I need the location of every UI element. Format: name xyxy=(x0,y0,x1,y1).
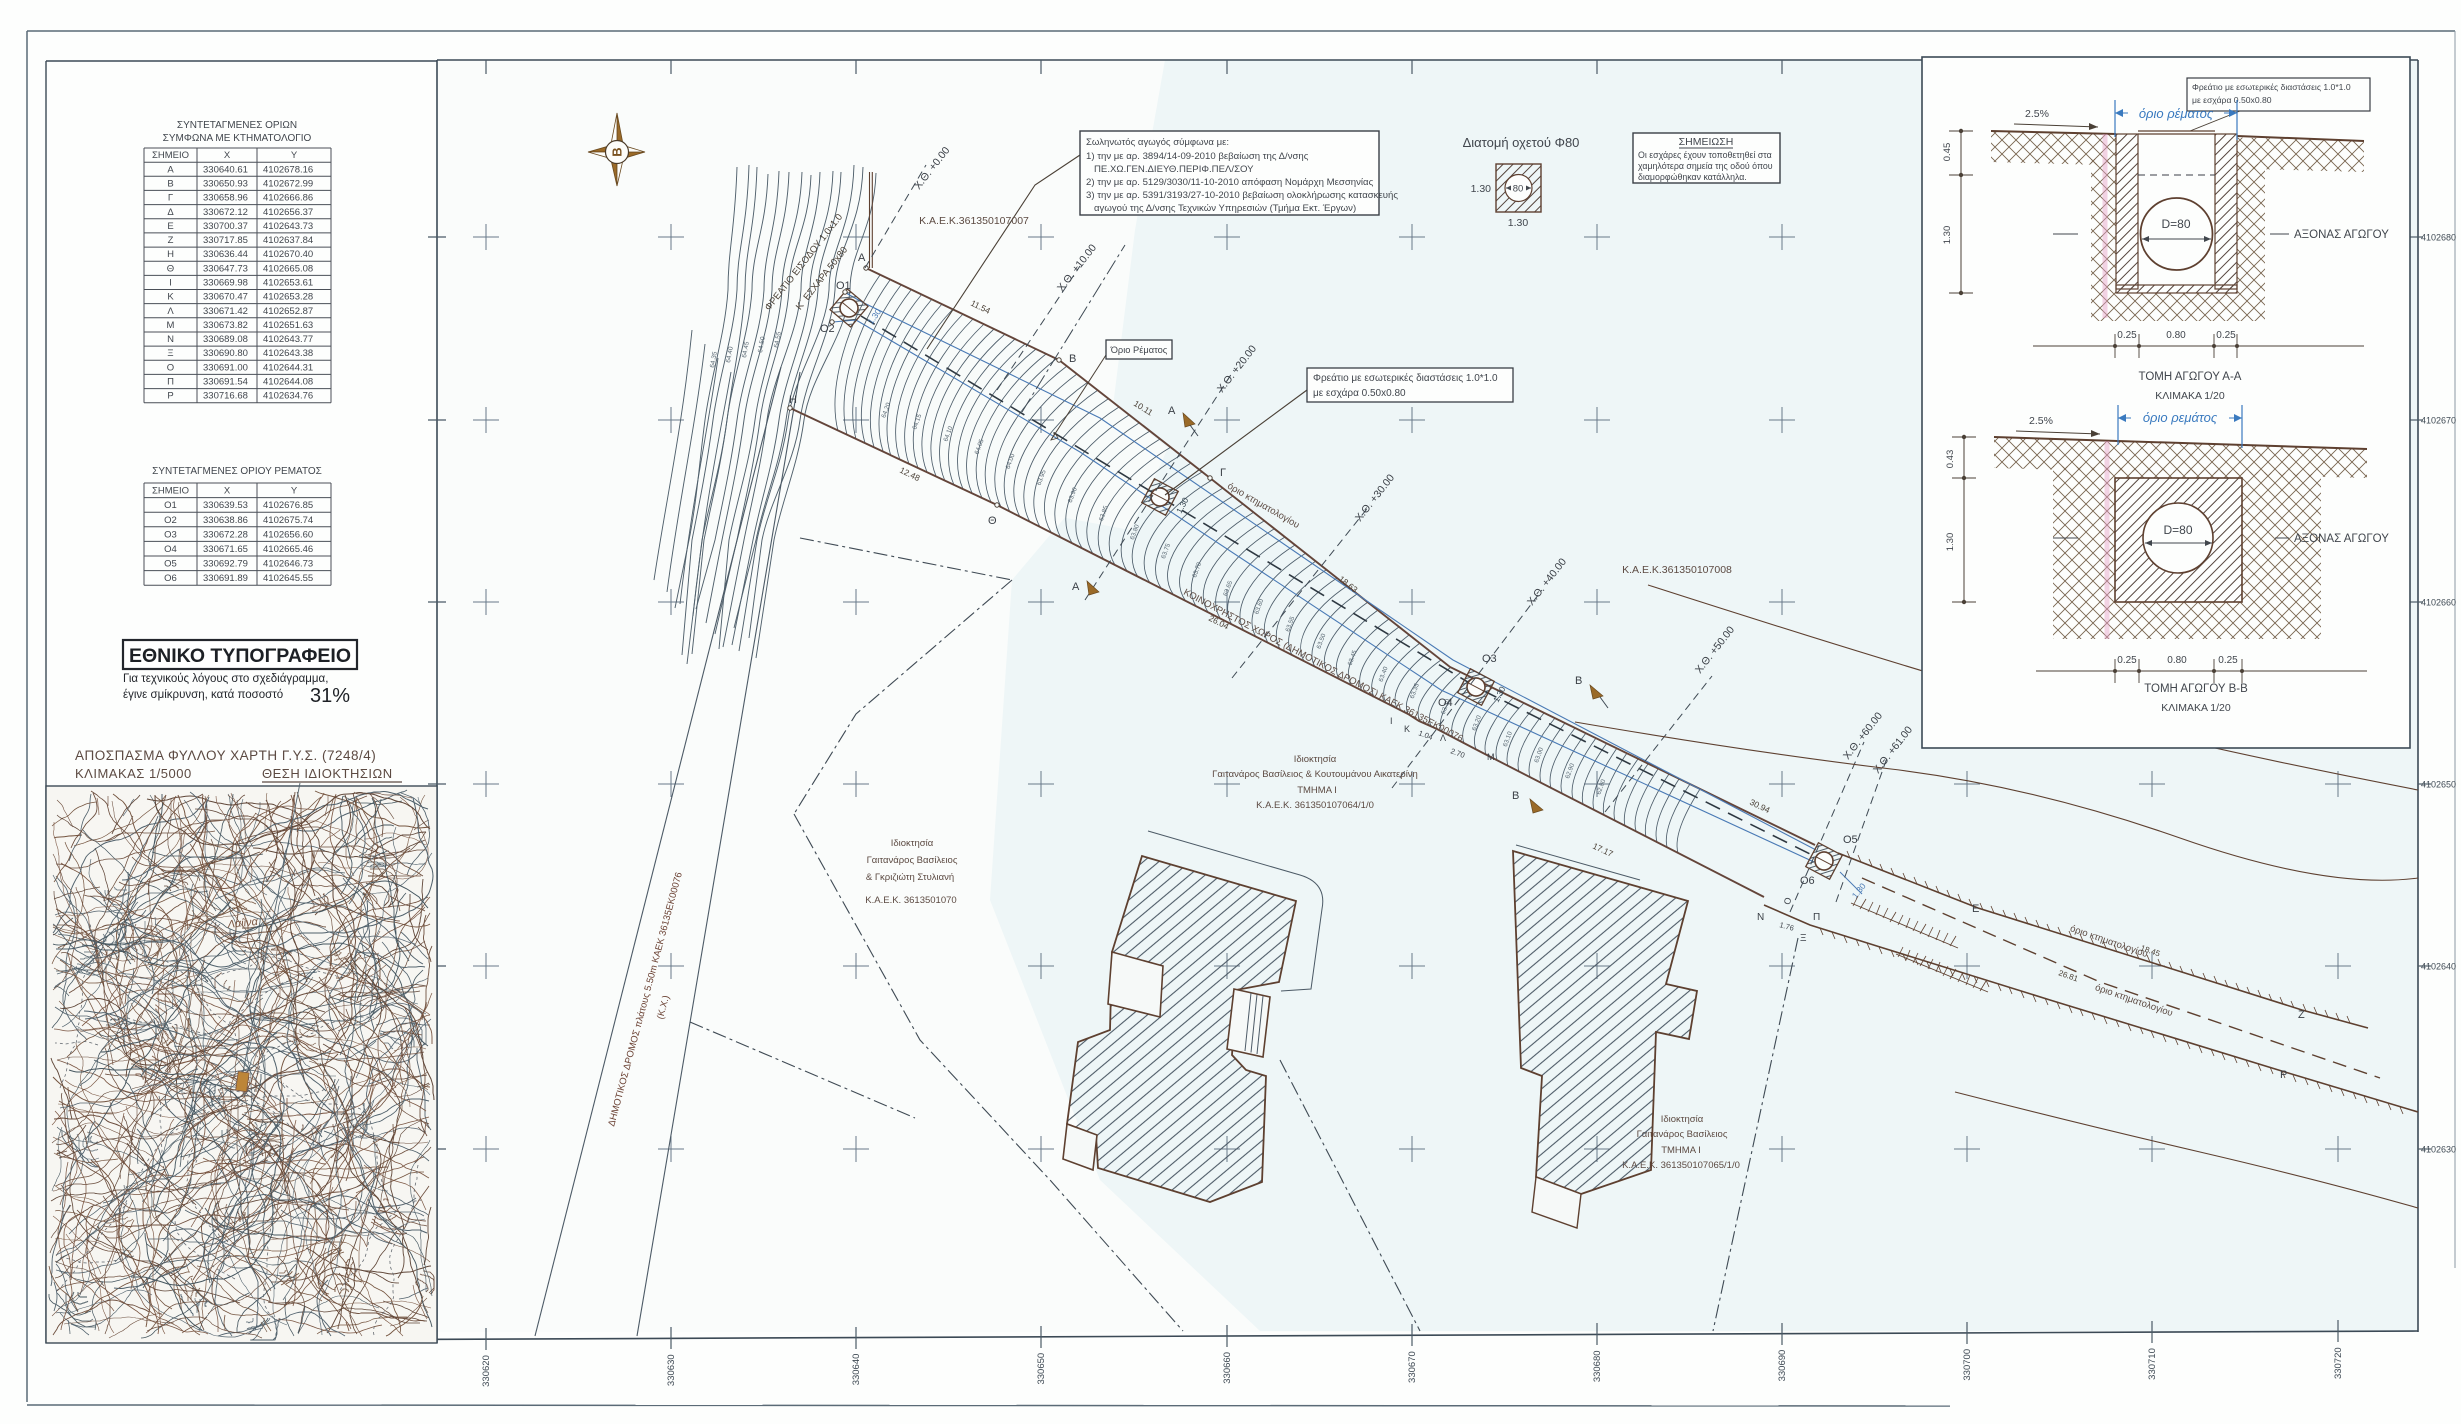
svg-text:Ο2: Ο2 xyxy=(164,515,177,526)
svg-text:Διατομή οχετού Φ80: Διατομή οχετού Φ80 xyxy=(1463,135,1580,150)
svg-text:330638.86: 330638.86 xyxy=(203,515,248,526)
svg-text:Οι εσχάρες έχουν τοποθετηθεί σ: Οι εσχάρες έχουν τοποθετηθεί στα xyxy=(1638,150,1772,160)
svg-text:Β: Β xyxy=(167,178,173,189)
svg-text:Η: Η xyxy=(789,394,797,406)
svg-text:Α: Α xyxy=(1168,405,1176,417)
svg-text:330647.73: 330647.73 xyxy=(203,263,248,274)
svg-text:Φρεάτιο με εσωτερικές διαστάσε: Φρεάτιο με εσωτερικές διαστάσεις 1.0*1.0 xyxy=(2192,82,2351,92)
svg-text:χαμηλότερα σημεία της οδού όπο: χαμηλότερα σημεία της οδού όπου xyxy=(1638,161,1773,171)
svg-text:ΕΘΝΙΚΟ ΤΥΠΟΓΡΑΦΕΙΟ: ΕΘΝΙΚΟ ΤΥΠΟΓΡΑΦΕΙΟ xyxy=(129,645,351,667)
svg-text:80: 80 xyxy=(1513,184,1524,195)
svg-text:4102656.37: 4102656.37 xyxy=(263,207,313,218)
svg-text:ΣΗΜΕΙΟ: ΣΗΜΕΙΟ xyxy=(152,150,189,161)
svg-text:Ιδιοκτησία: Ιδιοκτησία xyxy=(1661,1114,1704,1125)
svg-text:Γ: Γ xyxy=(168,193,173,204)
svg-text:330700.37: 330700.37 xyxy=(203,221,248,232)
svg-text:ΣΥΝΤΕΤΑΓΜΕΝΕΣ ΟΡΙΩΝ: ΣΥΝΤΕΤΑΓΜΕΝΕΣ ΟΡΙΩΝ xyxy=(177,120,297,131)
svg-text:Θ: Θ xyxy=(988,515,997,527)
svg-text:Ο: Ο xyxy=(167,362,174,373)
svg-text:ΚΛΙΜΑΚΑ 1/20: ΚΛΙΜΑΚΑ 1/20 xyxy=(2161,702,2231,714)
svg-text:έγινε σμίκρυνση, κατά ποσοστό: έγινε σμίκρυνση, κατά ποσοστό xyxy=(123,689,283,701)
svg-text:330672.28: 330672.28 xyxy=(203,529,248,540)
svg-text:0.25: 0.25 xyxy=(2216,330,2236,341)
svg-text:με εσχάρα 0.50x0.80: με εσχάρα 0.50x0.80 xyxy=(1313,387,1406,399)
svg-text:Ζ: Ζ xyxy=(2298,1009,2305,1021)
svg-text:Ξ: Ξ xyxy=(167,348,173,359)
svg-text:330636.44: 330636.44 xyxy=(203,249,248,260)
svg-text:330639.53: 330639.53 xyxy=(203,500,248,511)
svg-text:4102670: 4102670 xyxy=(2421,416,2456,426)
svg-text:Μ: Μ xyxy=(1487,752,1495,762)
svg-text:330692.79: 330692.79 xyxy=(203,559,248,570)
svg-text:ΑΠΟΣΠΑΣΜΑ ΦΥΛΛΟΥ ΧΑΡΤΗ Γ.Υ.Σ.: ΑΠΟΣΠΑΣΜΑ ΦΥΛΛΟΥ ΧΑΡΤΗ Γ.Υ.Σ. (7248/4) xyxy=(75,748,376,763)
svg-text:διαμορφώθηκαν κατάλληλα.: διαμορφώθηκαν κατάλληλα. xyxy=(1638,172,1747,182)
svg-text:4102676.85: 4102676.85 xyxy=(263,500,313,511)
svg-text:Β: Β xyxy=(1575,675,1582,687)
svg-text:Λ: Λ xyxy=(167,306,174,317)
svg-text:330720: 330720 xyxy=(2333,1347,2344,1379)
svg-text:330620: 330620 xyxy=(481,1355,492,1387)
svg-text:ΣΥΜΦΩΝΑ ΜΕ ΚΤΗΜΑΤΟΛΟΓΙΟ: ΣΥΜΦΩΝΑ ΜΕ ΚΤΗΜΑΤΟΛΟΓΙΟ xyxy=(163,133,312,144)
svg-text:4102652.87: 4102652.87 xyxy=(263,306,313,317)
svg-text:4102665.08: 4102665.08 xyxy=(263,263,313,274)
svg-text:0.80: 0.80 xyxy=(2166,330,2186,341)
svg-text:Ζ: Ζ xyxy=(168,235,174,246)
svg-text:330669.98: 330669.98 xyxy=(203,278,248,289)
svg-text:330673.82: 330673.82 xyxy=(203,320,248,331)
svg-text:Ι: Ι xyxy=(1390,716,1393,726)
svg-text:0.25: 0.25 xyxy=(2117,655,2137,666)
svg-text:Μ: Μ xyxy=(167,320,175,331)
svg-text:4102656.60: 4102656.60 xyxy=(263,529,313,540)
svg-text:Χ: Χ xyxy=(224,486,231,497)
svg-text:Υ: Υ xyxy=(291,486,298,497)
svg-text:330660: 330660 xyxy=(1222,1352,1233,1384)
svg-text:όριο ρέματος: όριο ρέματος xyxy=(2139,106,2214,121)
svg-text:Γ: Γ xyxy=(1220,467,1226,479)
svg-text:330630: 330630 xyxy=(666,1354,677,1386)
svg-text:Ο3: Ο3 xyxy=(164,529,177,540)
svg-text:Ε: Ε xyxy=(1972,903,1979,915)
svg-text:4102653.61: 4102653.61 xyxy=(263,278,313,289)
svg-text:Κ.Α.Ε.Κ. 361350107064/1/0: Κ.Α.Ε.Κ. 361350107064/1/0 xyxy=(1256,800,1374,811)
svg-text:ΣΥΝΤΕΤΑΓΜΕΝΕΣ ΟΡΙΟΥ ΡΕΜΑΤΟΣ: ΣΥΝΤΕΤΑΓΜΕΝΕΣ ΟΡΙΟΥ ΡΕΜΑΤΟΣ xyxy=(152,466,322,477)
svg-text:4102666.86: 4102666.86 xyxy=(263,193,313,204)
svg-text:1.30: 1.30 xyxy=(1508,217,1529,229)
svg-text:4102670.40: 4102670.40 xyxy=(263,249,313,260)
svg-text:Π: Π xyxy=(167,377,174,388)
svg-text:4102672.99: 4102672.99 xyxy=(263,178,313,189)
svg-text:330640: 330640 xyxy=(851,1354,862,1386)
svg-text:D=80: D=80 xyxy=(2163,523,2192,537)
svg-text:D=80: D=80 xyxy=(2161,217,2190,231)
svg-text:Ιδιοκτησία: Ιδιοκτησία xyxy=(1294,754,1337,765)
svg-text:Β: Β xyxy=(610,147,625,156)
svg-text:2) την με αρ. 5129/3030/11-10-: 2) την με αρ. 5129/3030/11-10-2010 απόφα… xyxy=(1086,177,1374,188)
svg-text:330650.93: 330650.93 xyxy=(203,178,248,189)
svg-text:αγωγού της Δ/νσης Τεχνικών Υπη: αγωγού της Δ/νσης Τεχνικών Υπηρεσιών (Τμ… xyxy=(1094,203,1356,214)
svg-text:Φρεάτιο με εσωτερικές διαστάσε: Φρεάτιο με εσωτερικές διαστάσεις 1.0*1.0 xyxy=(1313,372,1498,384)
svg-text:330650: 330650 xyxy=(1036,1353,1047,1385)
svg-text:Ν: Ν xyxy=(167,334,174,345)
svg-text:330640.61: 330640.61 xyxy=(203,164,248,175)
svg-text:4102640: 4102640 xyxy=(2421,962,2456,972)
svg-text:Ι: Ι xyxy=(169,278,172,289)
svg-text:1.30: 1.30 xyxy=(1942,226,1953,245)
svg-text:0.45: 0.45 xyxy=(1942,143,1953,162)
svg-text:330689.08: 330689.08 xyxy=(203,334,248,345)
svg-text:4102650: 4102650 xyxy=(2421,780,2456,790)
svg-text:Ο1: Ο1 xyxy=(164,500,177,511)
svg-text:4102643.38: 4102643.38 xyxy=(263,348,313,359)
svg-text:Κ: Κ xyxy=(1404,724,1410,734)
svg-text:Ξ: Ξ xyxy=(1800,933,1807,944)
svg-text:Α: Α xyxy=(167,164,174,175)
svg-text:Ε: Ε xyxy=(167,221,173,232)
svg-text:330671.65: 330671.65 xyxy=(203,544,248,555)
svg-text:ΤΜΗΜΑ Ι: ΤΜΗΜΑ Ι xyxy=(1297,785,1337,796)
svg-text:4102634.76: 4102634.76 xyxy=(263,391,313,402)
svg-text:330670: 330670 xyxy=(1407,1351,1418,1383)
svg-text:Σωληνωτός αγωγός σύμφωνα με:: Σωληνωτός αγωγός σύμφωνα με: xyxy=(1086,137,1229,148)
svg-text:& Γκριζιώτη Στυλιανή: & Γκριζιώτη Στυλιανή xyxy=(866,872,954,883)
svg-text:Α: Α xyxy=(858,252,866,264)
svg-text:Χ: Χ xyxy=(224,150,231,161)
svg-text:Ιδιοκτησία: Ιδιοκτησία xyxy=(891,838,934,849)
svg-text:0.43: 0.43 xyxy=(1945,450,1956,469)
svg-text:Α: Α xyxy=(1072,581,1080,593)
svg-text:330691.89: 330691.89 xyxy=(203,573,248,584)
svg-text:4102644.31: 4102644.31 xyxy=(263,362,313,373)
svg-text:Θ: Θ xyxy=(167,263,174,274)
svg-text:330717.85: 330717.85 xyxy=(203,235,248,246)
svg-text:ΠΕ.ΧΩ.ΓΕΝ.ΔΙΕΥΘ.ΠΕΡΙΦ.ΠΕΛ/ΣΟΥ: ΠΕ.ΧΩ.ΓΕΝ.ΔΙΕΥΘ.ΠΕΡΙΦ.ΠΕΛ/ΣΟΥ xyxy=(1094,164,1254,175)
svg-text:330716.68: 330716.68 xyxy=(203,391,248,402)
svg-text:1.30: 1.30 xyxy=(1471,183,1492,195)
svg-text:4102665.46: 4102665.46 xyxy=(263,544,313,555)
svg-text:330671.42: 330671.42 xyxy=(203,306,248,317)
svg-text:330710: 330710 xyxy=(2147,1348,2158,1380)
svg-text:0.25: 0.25 xyxy=(2117,330,2137,341)
svg-text:Υ: Υ xyxy=(291,150,298,161)
svg-text:4102651.63: 4102651.63 xyxy=(263,320,313,331)
svg-text:0.80: 0.80 xyxy=(2167,655,2187,666)
svg-text:330670.47: 330670.47 xyxy=(203,292,248,303)
svg-text:330691.54: 330691.54 xyxy=(203,377,248,388)
svg-text:Ο6: Ο6 xyxy=(164,573,177,584)
svg-text:Δ: Δ xyxy=(167,207,174,218)
svg-text:Η: Η xyxy=(167,249,174,260)
svg-text:330691.00: 330691.00 xyxy=(203,362,248,373)
svg-text:ΘΕΣΗ ΙΔΙΟΚΤΗΣΙΩΝ: ΘΕΣΗ ΙΔΙΟΚΤΗΣΙΩΝ xyxy=(262,766,393,781)
svg-text:4102660: 4102660 xyxy=(2421,598,2456,608)
svg-text:4102637.84: 4102637.84 xyxy=(263,235,313,246)
svg-text:Κ.Α.Ε.Κ. 3613501070: Κ.Α.Ε.Κ. 3613501070 xyxy=(865,895,956,906)
svg-text:ΣΗΜΕΙΩΣΗ: ΣΗΜΕΙΩΣΗ xyxy=(1679,136,1734,148)
svg-text:4102680: 4102680 xyxy=(2421,233,2456,243)
svg-text:ΑΞΟΝΑΣ ΑΓΩΓΟΥ: ΑΞΟΝΑΣ ΑΓΩΓΟΥ xyxy=(2294,229,2389,241)
svg-text:Όριο Ρέματος: Όριο Ρέματος xyxy=(1110,345,1168,355)
svg-text:Β: Β xyxy=(1069,353,1076,365)
svg-text:1.30: 1.30 xyxy=(1945,533,1956,552)
svg-text:Ρ: Ρ xyxy=(2280,1069,2287,1081)
svg-text:4102643.73: 4102643.73 xyxy=(263,221,313,232)
svg-text:Ο2: Ο2 xyxy=(820,323,835,335)
svg-text:Ο5: Ο5 xyxy=(1843,834,1858,846)
svg-text:330672.12: 330672.12 xyxy=(203,207,248,218)
svg-text:ΤΜΗΜΑ Ι: ΤΜΗΜΑ Ι xyxy=(1661,1145,1701,1156)
svg-text:όριο ρεμάτος: όριο ρεμάτος xyxy=(2143,410,2218,425)
svg-text:2.5%: 2.5% xyxy=(2025,108,2049,120)
svg-text:ΚΛΙΜΑΚΑ 1/20: ΚΛΙΜΑΚΑ 1/20 xyxy=(2155,390,2225,402)
svg-text:330690: 330690 xyxy=(1777,1350,1788,1382)
svg-text:Ν: Ν xyxy=(1757,912,1764,923)
svg-text:1) την με αρ. 3894/14-09-2010: 1) την με αρ. 3894/14-09-2010 βεβαίωση τ… xyxy=(1086,151,1309,162)
svg-text:3) την με αρ. 5391/3193/27-10-: 3) την με αρ. 5391/3193/27-10-2010 βεβαί… xyxy=(1086,190,1398,201)
svg-text:330680: 330680 xyxy=(1592,1350,1603,1382)
svg-text:Ρ: Ρ xyxy=(167,391,173,402)
svg-text:4102646.73: 4102646.73 xyxy=(263,559,313,570)
svg-text:4102630: 4102630 xyxy=(2421,1145,2456,1155)
svg-text:Γαιτανάρος Βασίλειος: Γαιτανάρος Βασίλειος xyxy=(867,855,958,866)
svg-text:4102675.74: 4102675.74 xyxy=(263,515,313,526)
svg-text:Γαιτανάρος Βασίλειος & Κουτουμ: Γαιτανάρος Βασίλειος & Κουτουμάνου Αικατ… xyxy=(1212,769,1418,780)
svg-text:ΤΟΜΗ ΑΓΩΓΟΥ Α-Α: ΤΟΜΗ ΑΓΩΓΟΥ Α-Α xyxy=(2139,371,2242,383)
svg-text:4102653.28: 4102653.28 xyxy=(263,292,313,303)
svg-text:ΣΗΜΕΙΟ: ΣΗΜΕΙΟ xyxy=(152,486,189,497)
svg-text:31%: 31% xyxy=(310,685,350,707)
svg-text:4102644.08: 4102644.08 xyxy=(263,377,313,388)
svg-text:2.5%: 2.5% xyxy=(2029,415,2053,427)
svg-text:4102645.55: 4102645.55 xyxy=(263,573,313,584)
svg-text:ΚΛΙΜΑΚΑΣ 1/5000: ΚΛΙΜΑΚΑΣ 1/5000 xyxy=(75,766,192,781)
svg-text:Κ.Α.Ε.Κ.361350107007: Κ.Α.Ε.Κ.361350107007 xyxy=(919,215,1029,227)
svg-text:Ο4: Ο4 xyxy=(1438,697,1453,709)
svg-text:ΑΞΟΝΑΣ ΑΓΩΓΟΥ: ΑΞΟΝΑΣ ΑΓΩΓΟΥ xyxy=(2294,533,2389,545)
svg-text:Ο5: Ο5 xyxy=(164,559,177,570)
svg-text:0.25: 0.25 xyxy=(2218,655,2238,666)
svg-text:Π: Π xyxy=(1813,912,1820,923)
svg-text:Κ.Α.Ε.Κ.361350107008: Κ.Α.Ε.Κ.361350107008 xyxy=(1622,564,1732,576)
svg-text:330700: 330700 xyxy=(1962,1349,1973,1381)
svg-text:Για τεχνικούς λόγους στο σχεδι: Για τεχνικούς λόγους στο σχεδιάγραμμα, xyxy=(123,673,328,685)
svg-text:ΤΟΜΗ ΑΓΩΓΟΥ Β-Β: ΤΟΜΗ ΑΓΩΓΟΥ Β-Β xyxy=(2144,683,2248,695)
svg-text:4102678.16: 4102678.16 xyxy=(263,164,313,175)
svg-text:4102643.77: 4102643.77 xyxy=(263,334,313,345)
svg-text:330658.96: 330658.96 xyxy=(203,193,248,204)
svg-text:Κ: Κ xyxy=(167,292,174,303)
svg-text:με εσχάρα 0.50x0.80: με εσχάρα 0.50x0.80 xyxy=(2192,95,2272,105)
svg-text:330690.80: 330690.80 xyxy=(203,348,248,359)
svg-text:Ο4: Ο4 xyxy=(164,544,177,555)
svg-text:Β: Β xyxy=(1512,790,1519,802)
